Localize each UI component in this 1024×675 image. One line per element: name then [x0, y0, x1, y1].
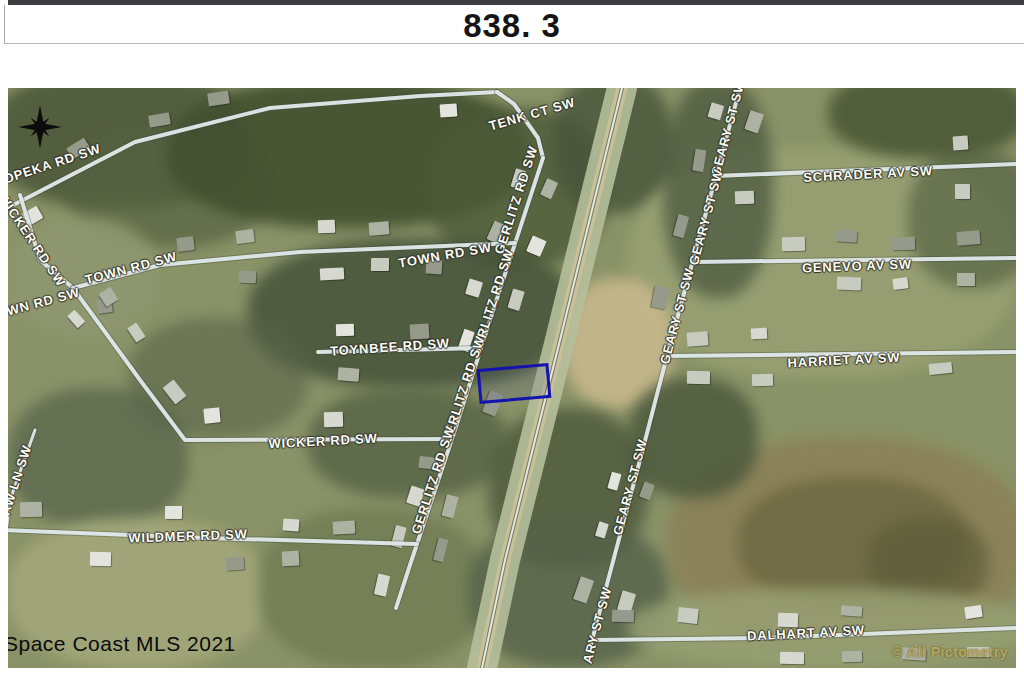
aerial-map: Space Coast MLS 2021 © All Pictometry TO…	[8, 88, 1016, 668]
compass-icon	[14, 101, 66, 153]
page: { "header": { "title": "838. 3" }, "wate…	[0, 0, 1024, 675]
pictometry-copyright: © All Pictometry	[892, 644, 1008, 660]
parcel-highlight	[477, 363, 552, 404]
mls-watermark: Space Coast MLS 2021	[8, 632, 236, 656]
page-title: 838. 3	[0, 7, 1024, 45]
window-top-bar	[8, 0, 1024, 5]
header-divider	[4, 43, 1024, 44]
